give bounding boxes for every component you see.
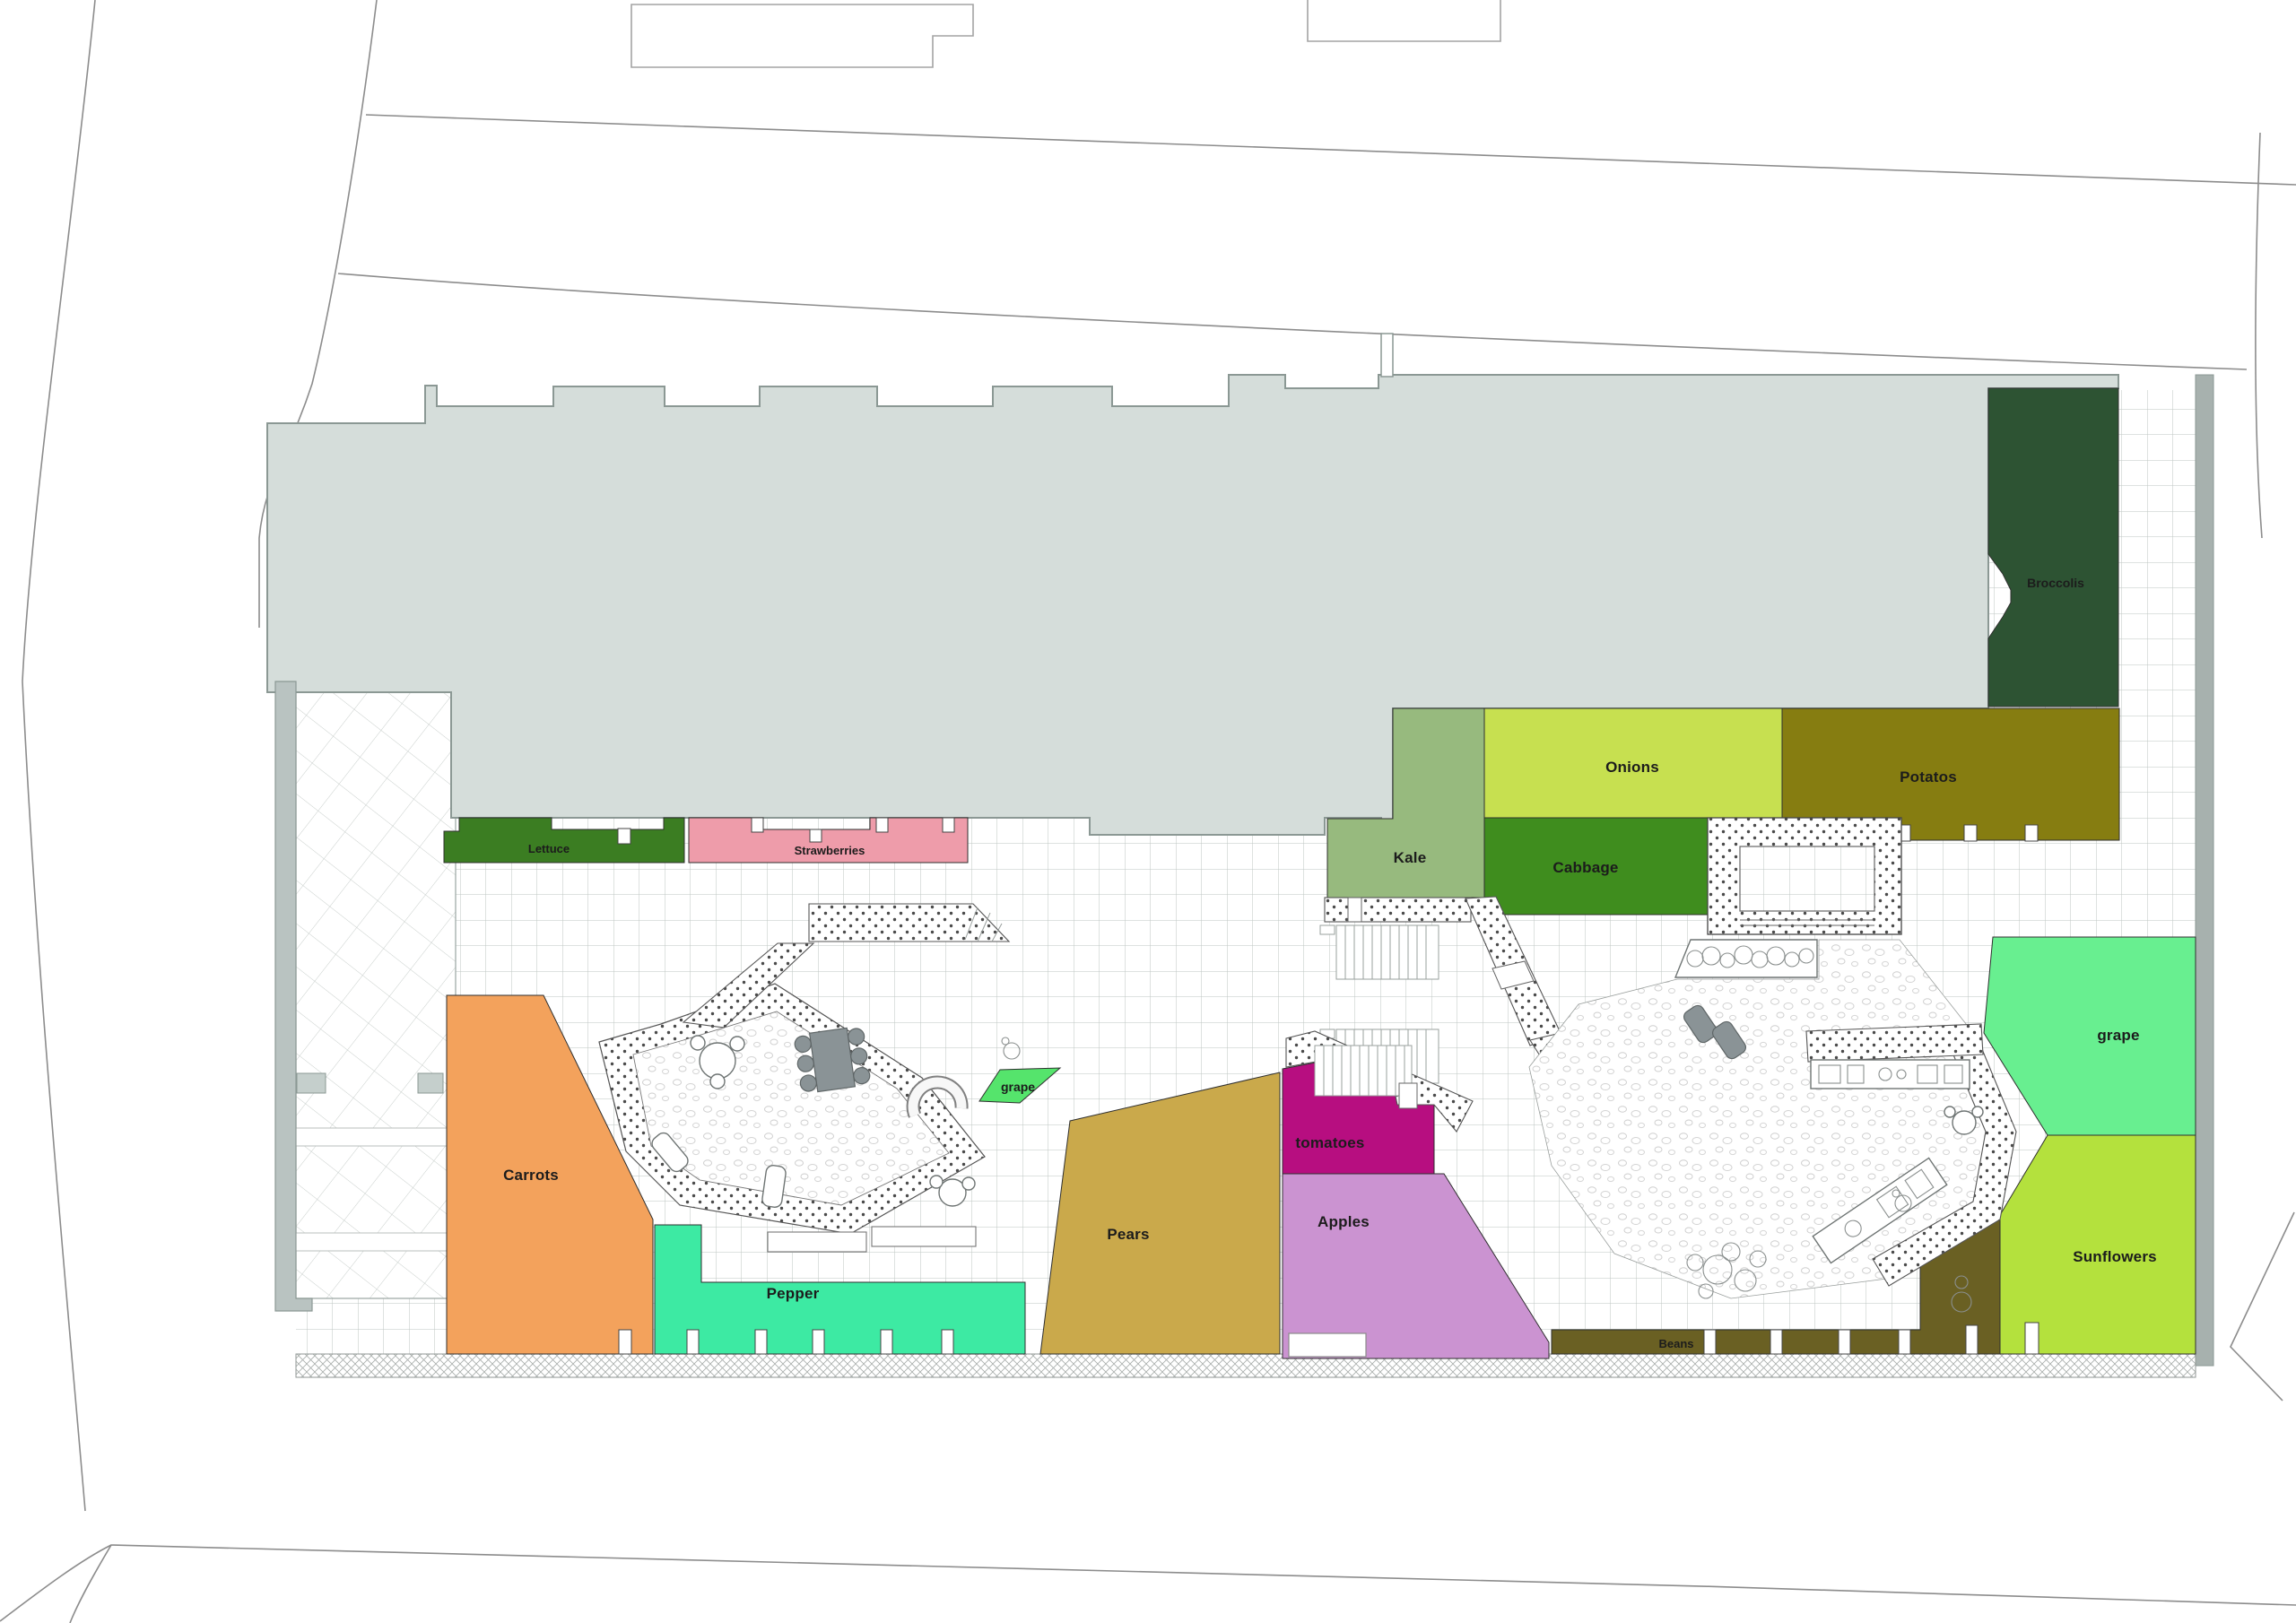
zone-grape-small-label: grape <box>1001 1080 1035 1094</box>
neighbour-building-top <box>631 4 973 67</box>
zone-apples-label: Apples <box>1318 1213 1370 1230</box>
dining-table-group <box>794 1026 871 1094</box>
zone-lettuce-label: Lettuce <box>528 842 570 855</box>
zone-potatos-label: Potatos <box>1900 768 1957 785</box>
road-line-top <box>366 115 2296 185</box>
zone-sunflowers: Sunflowers <box>2000 1135 2196 1354</box>
chair <box>710 1074 725 1089</box>
zone-broccolis-shape <box>1988 388 2118 707</box>
skylight-ring <box>1708 818 1901 934</box>
zone-onions-label: Onions <box>1605 759 1659 776</box>
chair <box>691 1036 705 1050</box>
entry-court-planter-right <box>418 1073 443 1093</box>
wall-bottom-hatch <box>296 1354 2196 1377</box>
bench-left-2 <box>872 1227 976 1246</box>
chair <box>962 1177 975 1190</box>
chair <box>1944 1107 1955 1117</box>
entry-court-diagonal-tiles <box>296 692 456 1298</box>
zone-sunflowers-label: Sunflowers <box>2073 1248 2157 1265</box>
zone-kale-label: Kale <box>1394 849 1427 866</box>
zone-onions: Onions <box>1484 708 1782 818</box>
road-line-left <box>22 0 95 1511</box>
zone-cabbage: Cabbage <box>1484 818 1708 915</box>
round-table <box>700 1043 735 1079</box>
zone-broccolis: Broccolis <box>1988 388 2118 707</box>
stair-landing-door <box>1399 1083 1417 1108</box>
zone-strawberries-label: Strawberries <box>795 844 865 857</box>
walkway-below-kale <box>1325 898 1471 922</box>
entry-court-planter-left <box>297 1073 326 1093</box>
stair-flight-a <box>1320 925 1439 979</box>
zone-apples-bench <box>1289 1333 1366 1357</box>
neighbour-building-top-right <box>1308 0 1500 41</box>
entry-court-band-1 <box>296 1128 456 1146</box>
chair <box>1972 1107 1983 1117</box>
zone-broccolis-label: Broccolis <box>2027 576 2084 590</box>
zone-sunflowers-shape <box>2000 1135 2196 1354</box>
planter-bed <box>1675 940 1817 977</box>
kitchen-counter <box>1811 1060 1970 1089</box>
road-line-top-2 <box>338 273 2247 369</box>
zone-carrots-door <box>619 1330 631 1354</box>
building-rooftop-pole <box>1381 334 1393 377</box>
zone-pepper-label: Pepper <box>767 1285 820 1302</box>
stair-flight-tomatoes <box>1315 1046 1412 1096</box>
zone-lettuce-door <box>618 829 631 844</box>
zone-beans-label: Beans <box>1658 1337 1693 1350</box>
plot-boundary-bottom-right <box>2231 1212 2294 1401</box>
site-plan-canvas: { "plan": { "type": "rooftop-garden-floo… <box>0 0 2296 1623</box>
bench-left-1 <box>768 1232 866 1252</box>
road-line-right <box>2256 133 2262 538</box>
zone-tomatoes-label: tomatoes <box>1295 1134 1364 1151</box>
chair <box>930 1176 943 1188</box>
zone-carrots-label: Carrots <box>503 1167 559 1184</box>
kitchen-walkway-band <box>1806 1024 1983 1062</box>
wall-right <box>2196 375 2213 1366</box>
walkway-strawberries <box>809 904 1009 942</box>
zone-pears-label: Pears <box>1107 1226 1149 1243</box>
entry-court-band-2 <box>296 1233 456 1251</box>
zone-cabbage-label: Cabbage <box>1552 859 1618 876</box>
zone-sunflowers-door <box>2025 1323 2039 1354</box>
zone-grape-label: grape <box>2097 1027 2139 1044</box>
floor-plan-svg: Broccolis Onions Potatos Kale Cabbage <box>0 0 2296 1623</box>
road-line-bottom <box>0 1545 2296 1621</box>
chair <box>730 1037 744 1051</box>
walkway-door <box>1348 898 1361 922</box>
